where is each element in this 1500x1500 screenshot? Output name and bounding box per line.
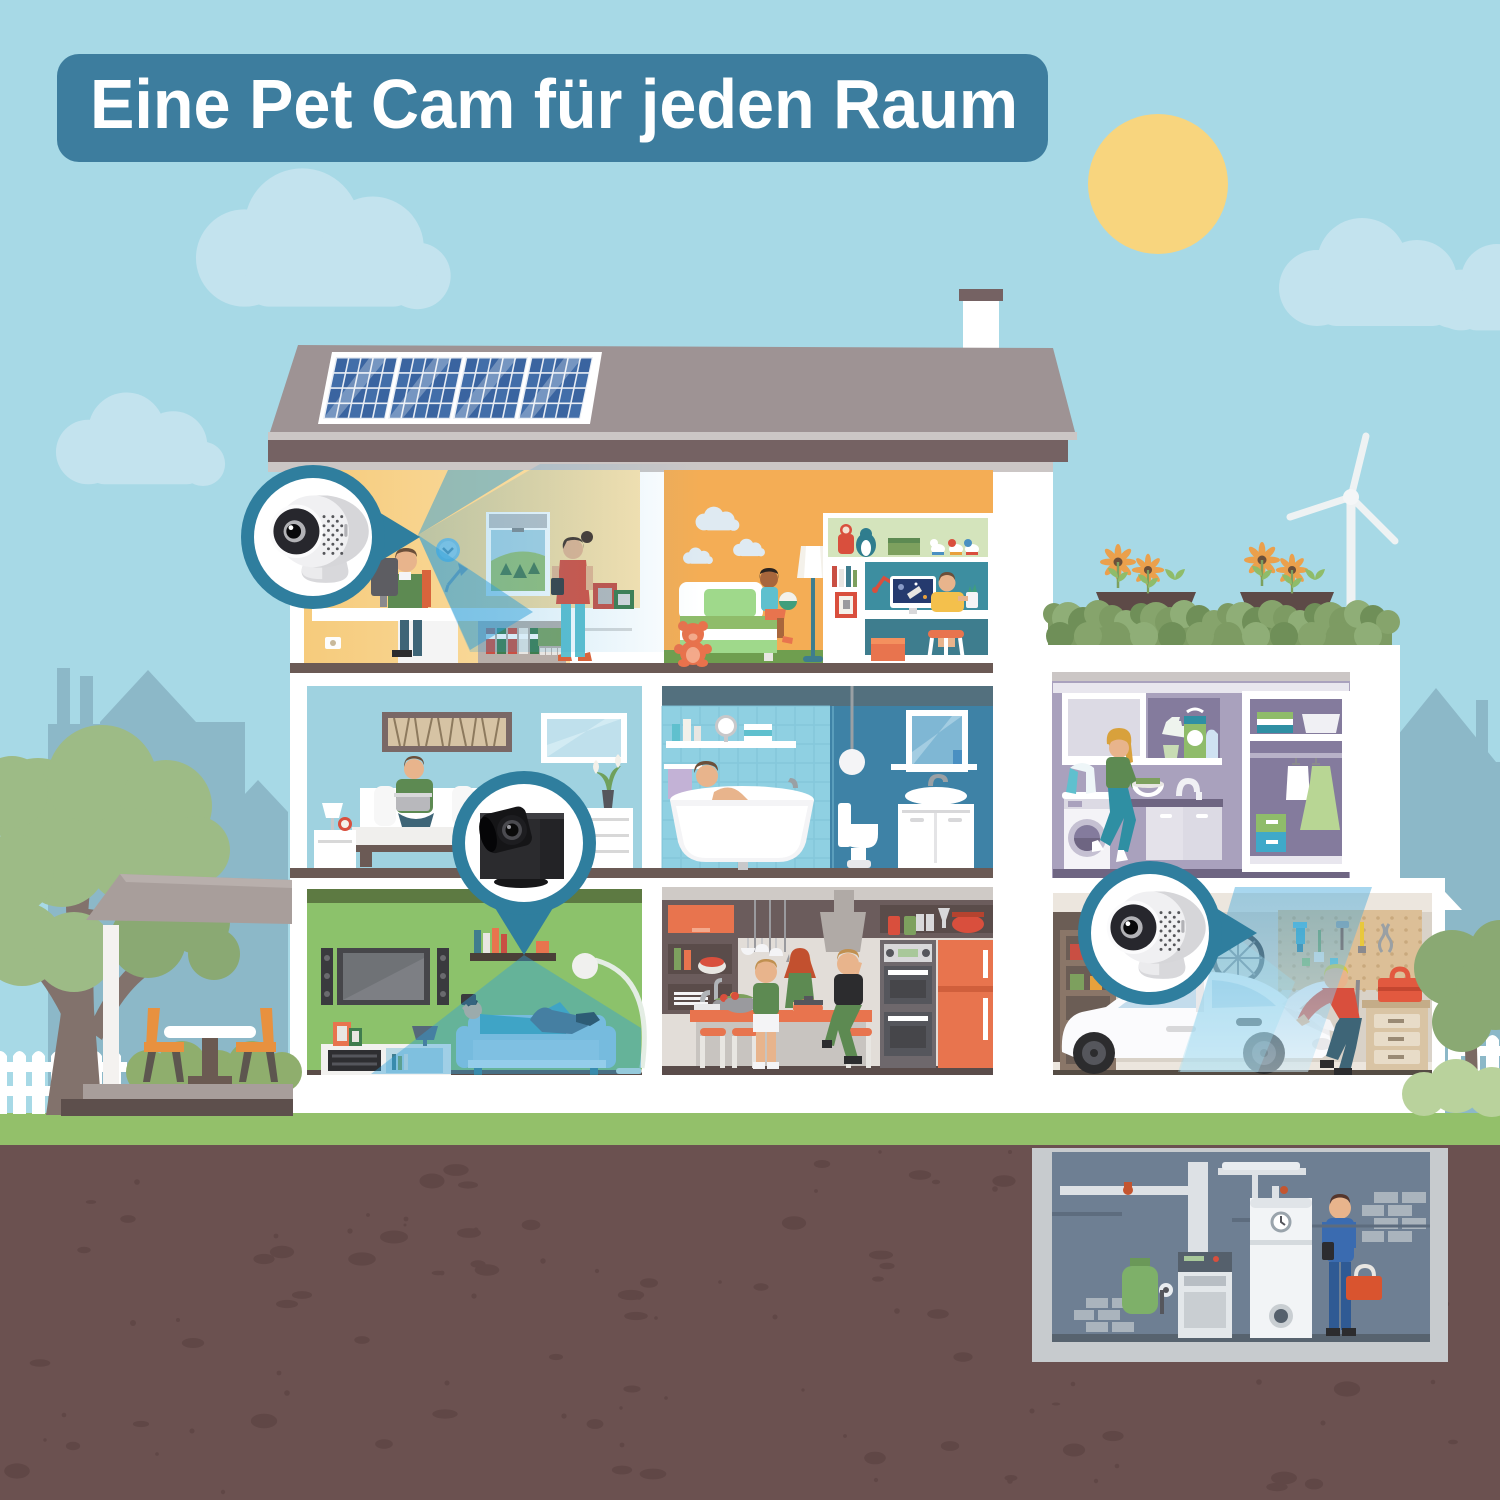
- svg-text:Eine Pet Cam für jeden Raum: Eine Pet Cam für jeden Raum: [90, 65, 1018, 143]
